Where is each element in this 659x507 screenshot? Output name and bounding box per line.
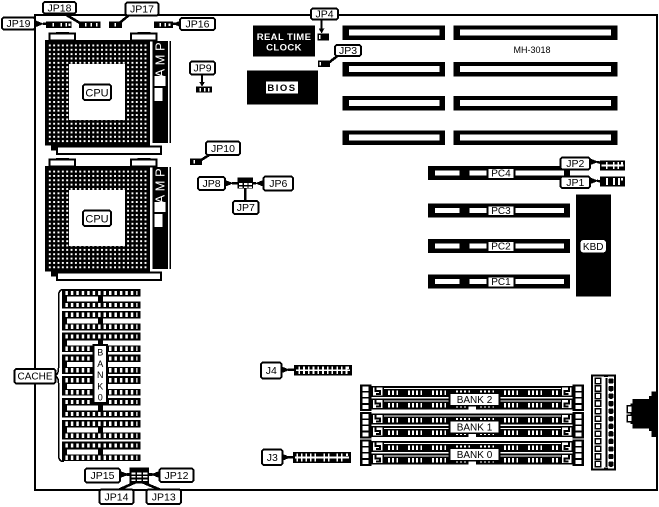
svg-text:JP3: JP3 [339,45,357,57]
svg-text:KBD: KBD [583,242,604,253]
svg-text:BIOS: BIOS [267,83,296,94]
svg-text:J4: J4 [266,365,277,377]
svg-text:PC4: PC4 [491,169,511,180]
svg-text:JP12: JP12 [165,470,189,482]
svg-text:JP8: JP8 [202,178,220,190]
svg-text:JP14: JP14 [105,491,129,503]
svg-text:JP19: JP19 [7,18,31,30]
svg-text:CPU: CPU [85,214,108,226]
svg-text:JP16: JP16 [186,19,210,31]
svg-text:PC3: PC3 [491,206,511,217]
svg-text:JP1: JP1 [566,177,584,189]
svg-text:JP7: JP7 [237,202,255,214]
svg-text:B: B [97,348,103,358]
svg-text:N: N [97,370,104,380]
svg-text:A: A [97,359,103,369]
svg-text:CPU: CPU [85,88,108,100]
svg-text:JP6: JP6 [269,178,287,190]
svg-text:CACHE: CACHE [17,372,52,383]
svg-text:JP13: JP13 [152,491,176,503]
svg-text:J3: J3 [267,452,278,464]
svg-text:PC2: PC2 [491,242,511,253]
svg-text:BANK 0: BANK 0 [457,450,493,461]
svg-text:JP15: JP15 [91,470,115,482]
svg-text:MH-3018: MH-3018 [513,45,550,55]
svg-text:BANK 1: BANK 1 [457,423,493,434]
svg-text:BANK 2: BANK 2 [457,395,493,406]
svg-text:AMP: AMP [153,165,168,204]
svg-text:JP18: JP18 [48,2,72,14]
svg-text:JP4: JP4 [315,9,333,21]
svg-text:REAL TIME: REAL TIME [257,32,312,43]
svg-text:JP2: JP2 [566,158,584,170]
svg-text:CLOCK: CLOCK [266,43,302,54]
svg-text:JP10: JP10 [211,143,235,155]
svg-text:JP17: JP17 [130,4,154,16]
svg-text:K: K [97,381,103,391]
svg-text:AMP: AMP [153,39,168,78]
svg-text:PC1: PC1 [491,277,511,288]
svg-text:0: 0 [98,393,103,403]
svg-text:JP9: JP9 [193,63,211,75]
